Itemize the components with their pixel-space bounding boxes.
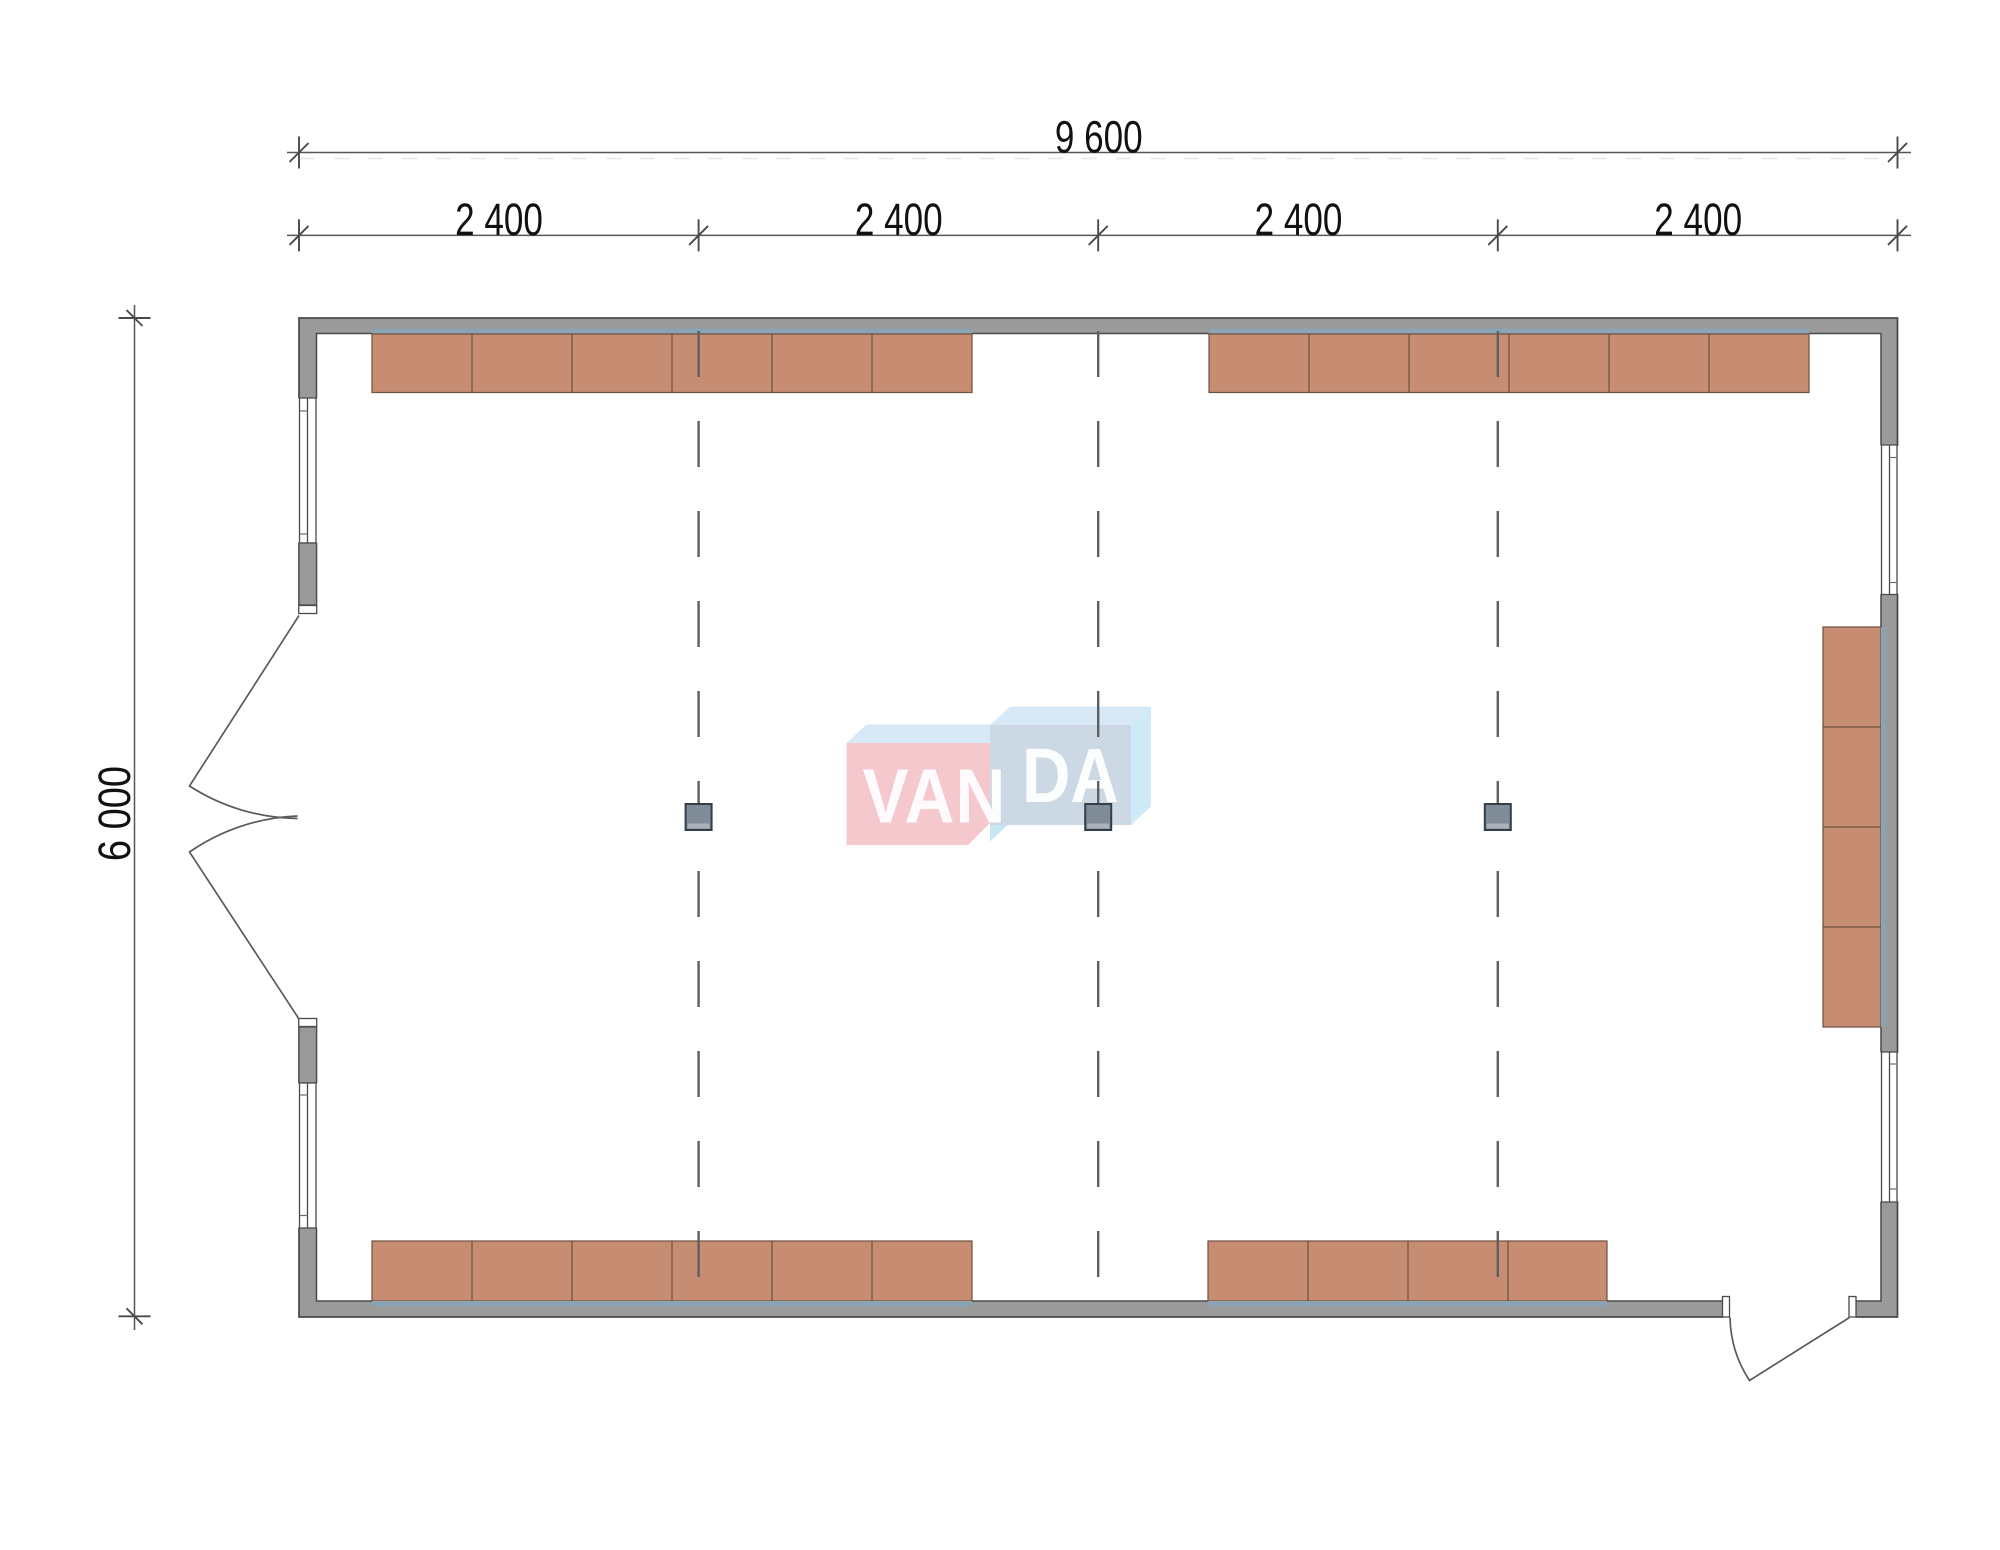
svg-text:2 400: 2 400: [1654, 194, 1742, 245]
svg-text:6 000: 6 000: [89, 766, 140, 861]
svg-text:VAN: VAN: [863, 753, 1007, 839]
svg-text:9 600: 9 600: [1055, 111, 1143, 162]
svg-text:2 400: 2 400: [455, 194, 543, 245]
svg-text:2 400: 2 400: [855, 194, 943, 245]
svg-text:2 400: 2 400: [1255, 194, 1343, 245]
